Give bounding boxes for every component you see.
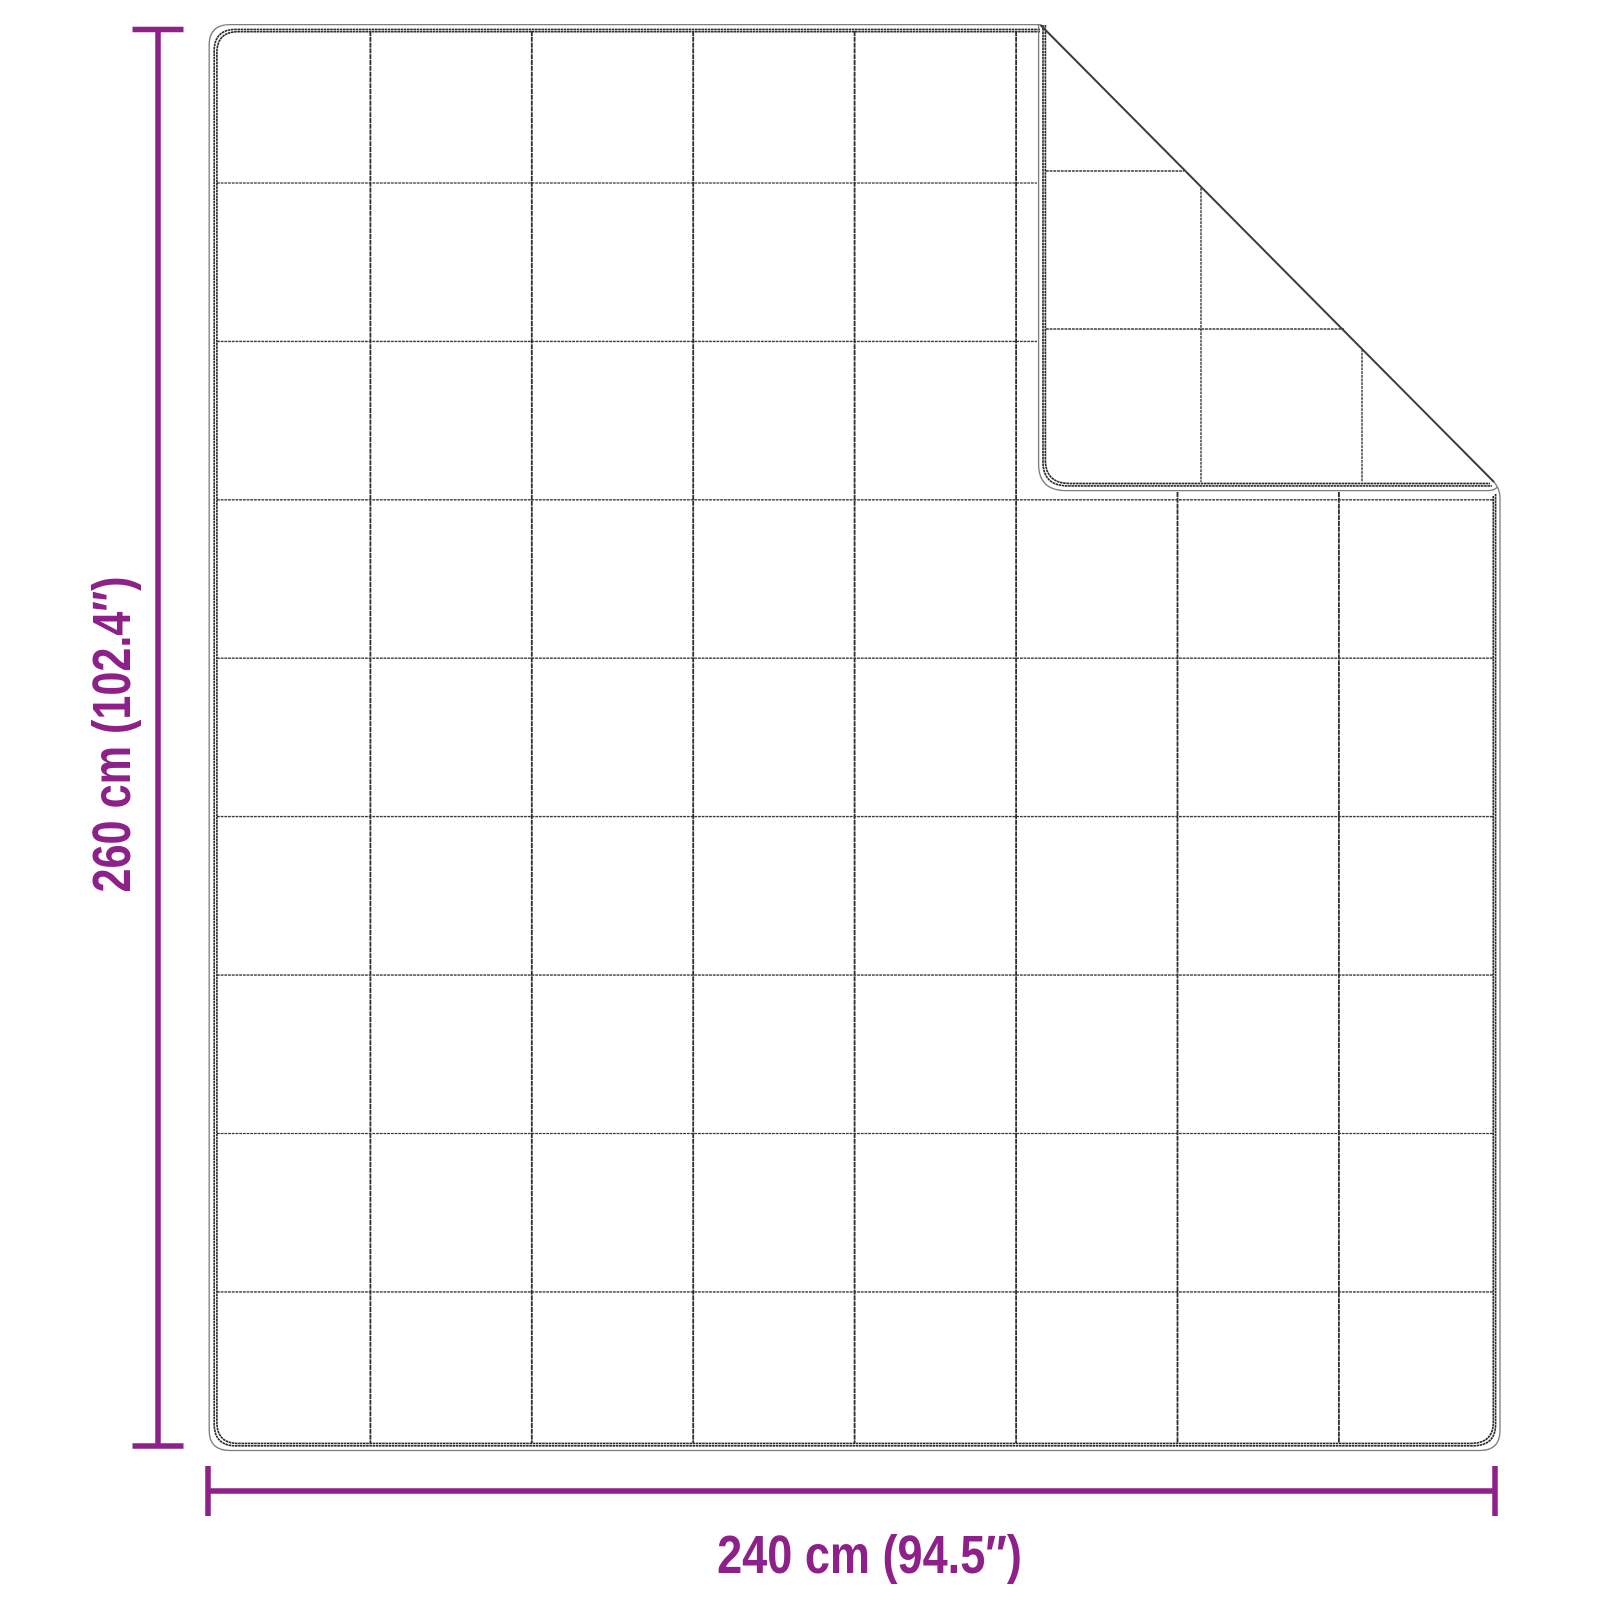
svg-text:240 cm (94.5″): 240 cm (94.5″) [717,1524,1022,1585]
svg-text:260 cm (102.4″): 260 cm (102.4″) [83,577,143,893]
